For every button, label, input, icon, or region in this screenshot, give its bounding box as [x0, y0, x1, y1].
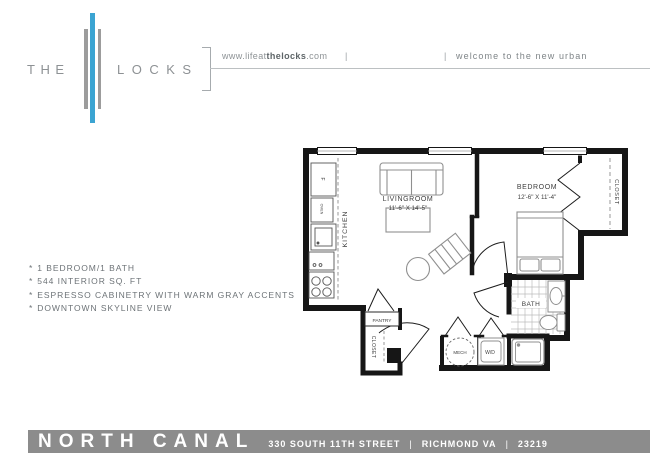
- feature-item: *544 INTERIOR SQ. FT: [29, 275, 295, 288]
- pantry-door: [368, 289, 394, 311]
- entry-door: [379, 323, 429, 363]
- bullet-glyph: *: [29, 276, 33, 286]
- bath-fixtures: [512, 281, 565, 365]
- street-address: 330 SOUTH 11TH STREET: [268, 439, 400, 449]
- bullet-glyph: *: [29, 290, 33, 300]
- feature-item: *1 BEDROOM/1 BATH: [29, 262, 295, 275]
- living-room-furniture: [380, 163, 471, 281]
- livingroom-dims: 11'-6" X 14'-5": [389, 205, 428, 212]
- feature-text: 1 BEDROOM/1 BATH: [37, 263, 135, 273]
- round-table: [407, 258, 430, 281]
- footer-divider: |: [506, 439, 509, 449]
- entry-closet-label: CLOSET: [370, 336, 376, 358]
- entry-closet-pier: [387, 348, 401, 363]
- footer-bar: NORTH CANAL 330 SOUTH 11TH STREET|RICHMO…: [28, 430, 650, 453]
- feature-text: ESPRESSO CABINETRY WITH WARM GRAY ACCENT…: [37, 290, 295, 300]
- bedroom-door: [472, 242, 508, 277]
- kitchen-appliances: [309, 163, 336, 298]
- property-name: NORTH CANAL: [38, 430, 254, 453]
- bath-door: [474, 282, 508, 317]
- bullet-glyph: *: [29, 303, 33, 313]
- counter: [309, 252, 334, 270]
- pantry-label: PANTRY: [372, 318, 392, 324]
- logo-word-the: THE: [27, 62, 70, 77]
- shower-drain: [517, 344, 519, 346]
- header-rule: [210, 68, 650, 69]
- flyer-page: THE LOCKS www.lifeatthelocks.com | | wel…: [0, 0, 650, 453]
- mech-door: [445, 317, 471, 336]
- chaise-chair: [429, 233, 471, 274]
- oven-label: OVEN: [320, 204, 324, 215]
- toilet-tank: [557, 314, 565, 331]
- header-bracket-tick-top: [202, 47, 211, 48]
- toilet-bowl: [540, 316, 557, 330]
- mech-label: MECH: [453, 350, 466, 355]
- feature-text: 544 INTERIOR SQ. FT: [37, 276, 142, 286]
- wd-label: W/D: [485, 350, 495, 356]
- wd-door: [479, 318, 504, 336]
- header-tagline: welcome to the new urban: [456, 51, 587, 61]
- bedroom-label: BEDROOM: [517, 184, 557, 191]
- city-state: RICHMOND VA: [422, 439, 497, 449]
- header-divider-1: |: [345, 51, 348, 61]
- zip-code: 23219: [518, 439, 548, 449]
- feature-item: *DOWNTOWN SKYLINE VIEW: [29, 302, 295, 315]
- kitchen-label: KITCHEN: [342, 211, 349, 248]
- pillow: [520, 259, 539, 271]
- header-bracket-line: [210, 47, 211, 91]
- logo-bar-right: [98, 29, 102, 109]
- livingroom-label: LIVINGROOM: [383, 196, 434, 203]
- fridge-label: F: [319, 177, 325, 180]
- website-url[interactable]: www.lifeatthelocks.com: [222, 51, 327, 61]
- footer-address: 330 SOUTH 11TH STREET|RICHMOND VA|23219: [268, 439, 548, 449]
- bath-label: BATH: [522, 301, 540, 308]
- footer-divider: |: [409, 439, 412, 449]
- feature-item: *ESPRESSO CABINETRY WITH WARM GRAY ACCEN…: [29, 289, 295, 302]
- logo-word-locks: LOCKS: [117, 62, 199, 77]
- feature-list: *1 BEDROOM/1 BATH *544 INTERIOR SQ. FT *…: [29, 262, 295, 316]
- bullet-glyph: *: [29, 263, 33, 273]
- logo-bar-blue: [90, 13, 95, 123]
- feature-text: DOWNTOWN SKYLINE VIEW: [37, 303, 172, 313]
- bedroom-dims: 12'-6" X 11'-4": [518, 194, 557, 201]
- walls: [306, 151, 625, 373]
- bed: [517, 212, 563, 274]
- pillow: [541, 259, 560, 271]
- url-bold: thelocks: [267, 51, 307, 61]
- url-suffix: .com: [306, 51, 327, 61]
- header-bracket-tick-bottom: [202, 90, 211, 91]
- floorplan-drawing: LIVINGROOM 11'-6" X 14'-5" BEDROOM 12'-6…: [300, 144, 632, 376]
- header-divider-2: |: [444, 51, 447, 61]
- logo-bar-left: [84, 29, 88, 109]
- url-prefix: www.lifeat: [222, 51, 267, 61]
- bedroom-closet-label: CLOSET: [613, 179, 619, 205]
